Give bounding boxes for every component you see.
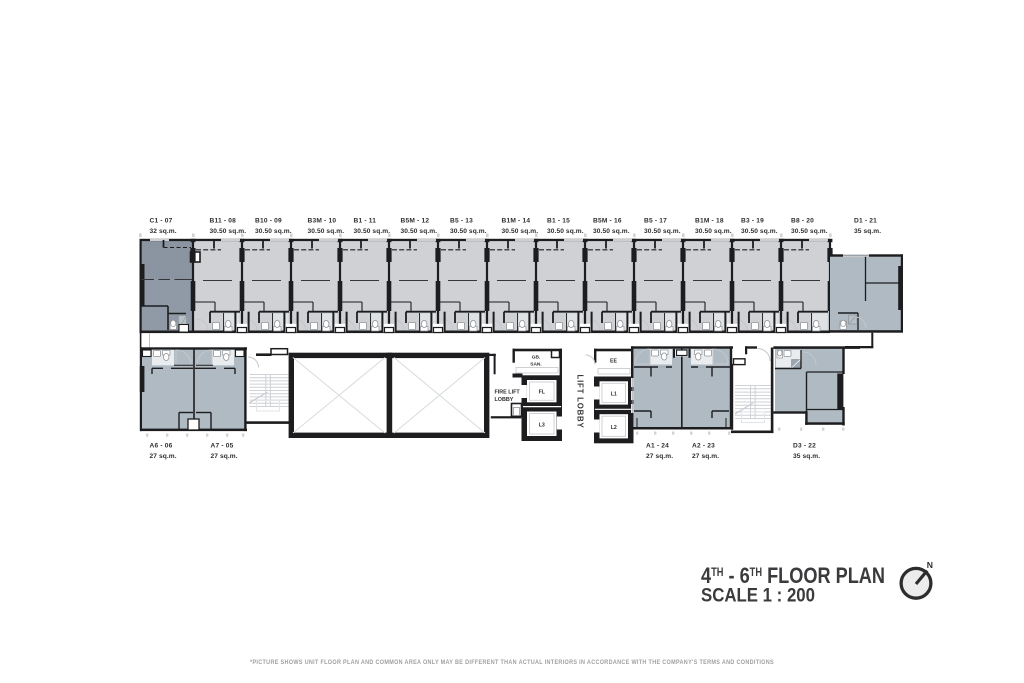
svg-text:B8 - 20: B8 - 20 bbox=[791, 218, 814, 225]
svg-text:B1 - 15: B1 - 15 bbox=[547, 218, 570, 225]
svg-text:N: N bbox=[927, 560, 933, 570]
svg-text:27 sq.m.: 27 sq.m. bbox=[646, 453, 673, 460]
svg-text:L1: L1 bbox=[611, 392, 617, 398]
svg-text:32 sq.m.: 32 sq.m. bbox=[150, 228, 177, 235]
svg-text:35 sq.m.: 35 sq.m. bbox=[854, 228, 881, 235]
svg-text:30.50 sq.m.: 30.50 sq.m. bbox=[450, 228, 487, 235]
svg-text:30.50 sq.m.: 30.50 sq.m. bbox=[401, 228, 438, 235]
svg-text:27 sq.m.: 27 sq.m. bbox=[211, 453, 238, 460]
svg-text:30.50 sq.m.: 30.50 sq.m. bbox=[308, 228, 345, 235]
svg-text:30.50 sq.m.: 30.50 sq.m. bbox=[593, 228, 630, 235]
svg-text:30.50 sq.m.: 30.50 sq.m. bbox=[791, 228, 828, 235]
svg-text:B5M - 16: B5M - 16 bbox=[593, 218, 622, 225]
svg-text:35 sq.m.: 35 sq.m. bbox=[793, 453, 820, 460]
svg-text:30.50 sq.m.: 30.50 sq.m. bbox=[210, 228, 247, 235]
svg-text:27 sq.m.: 27 sq.m. bbox=[692, 453, 719, 460]
svg-text:B11 - 08: B11 - 08 bbox=[210, 218, 237, 225]
svg-text:4TH - 6TH FLOOR PLAN: 4TH - 6TH FLOOR PLAN bbox=[701, 563, 885, 588]
svg-text:B5 - 13: B5 - 13 bbox=[450, 218, 473, 225]
svg-text:30.50 sq.m.: 30.50 sq.m. bbox=[741, 228, 778, 235]
svg-text:A7 - 05: A7 - 05 bbox=[211, 443, 234, 450]
svg-text:A6 - 06: A6 - 06 bbox=[150, 443, 173, 450]
svg-text:C1 - 07: C1 - 07 bbox=[150, 218, 173, 225]
svg-text:*PICTURE SHOWS UNIT FLOOR PLAN: *PICTURE SHOWS UNIT FLOOR PLAN AND COMMO… bbox=[250, 660, 774, 666]
svg-text:D3 - 22: D3 - 22 bbox=[793, 443, 816, 450]
svg-text:30.50 sq.m.: 30.50 sq.m. bbox=[502, 228, 539, 235]
svg-text:B1 - 11: B1 - 11 bbox=[354, 218, 377, 225]
svg-text:SCALE 1 : 200: SCALE 1 : 200 bbox=[701, 586, 815, 607]
svg-text:30.50 sq.m.: 30.50 sq.m. bbox=[547, 228, 584, 235]
svg-text:GB.: GB. bbox=[532, 354, 541, 360]
svg-text:30.50 sq.m.: 30.50 sq.m. bbox=[354, 228, 391, 235]
svg-text:30.50 sq.m.: 30.50 sq.m. bbox=[695, 228, 732, 235]
svg-text:L3: L3 bbox=[539, 423, 545, 429]
svg-text:LOBBY: LOBBY bbox=[495, 397, 514, 403]
svg-text:B1M - 18: B1M - 18 bbox=[695, 218, 724, 225]
svg-text:B5M - 12: B5M - 12 bbox=[401, 218, 430, 225]
svg-text:L2: L2 bbox=[611, 425, 617, 431]
svg-text:FIRE LIFT: FIRE LIFT bbox=[495, 390, 521, 396]
svg-text:FL: FL bbox=[539, 390, 546, 396]
svg-text:B3M - 10: B3M - 10 bbox=[308, 218, 337, 225]
svg-text:SAN.: SAN. bbox=[530, 361, 541, 367]
svg-text:B10 - 09: B10 - 09 bbox=[255, 218, 282, 225]
svg-text:30.50 sq.m.: 30.50 sq.m. bbox=[255, 228, 292, 235]
svg-text:30.50 sq.m.: 30.50 sq.m. bbox=[644, 228, 681, 235]
svg-text:A2 - 23: A2 - 23 bbox=[692, 443, 715, 450]
svg-text:LIFT LOBBY: LIFT LOBBY bbox=[576, 375, 585, 429]
svg-text:EE: EE bbox=[610, 359, 617, 365]
svg-text:B3 - 19: B3 - 19 bbox=[741, 218, 764, 225]
svg-text:A1 - 24: A1 - 24 bbox=[646, 443, 669, 450]
svg-text:B1M - 14: B1M - 14 bbox=[502, 218, 531, 225]
svg-text:B5 - 17: B5 - 17 bbox=[644, 218, 667, 225]
svg-text:27 sq.m.: 27 sq.m. bbox=[150, 453, 177, 460]
svg-text:D1 - 21: D1 - 21 bbox=[854, 218, 877, 225]
